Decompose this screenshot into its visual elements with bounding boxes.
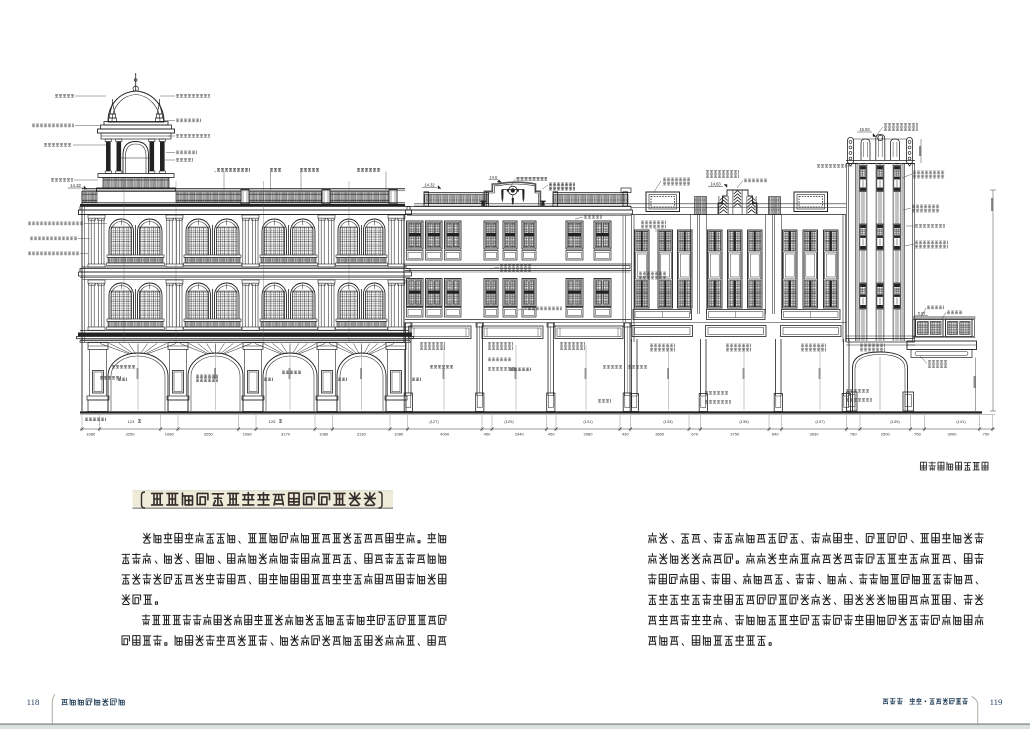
svg-text:119: 119: [990, 697, 1003, 707]
svg-text:1080: 1080: [243, 432, 253, 437]
svg-text:125: 125: [269, 419, 276, 424]
svg-text:3170: 3170: [281, 432, 291, 437]
svg-text:14.32: 14.32: [424, 183, 435, 188]
svg-text:(131): (131): [583, 419, 593, 424]
svg-text:1080: 1080: [86, 432, 96, 437]
svg-text:3250: 3250: [126, 432, 136, 437]
svg-text:670: 670: [691, 432, 698, 437]
svg-text:3600: 3600: [655, 432, 665, 437]
svg-text:1080: 1080: [165, 432, 175, 437]
svg-text:3130: 3130: [357, 432, 367, 437]
svg-text:450: 450: [548, 432, 555, 437]
svg-text:(133): (133): [663, 419, 673, 424]
svg-text:5.85: 5.85: [918, 311, 926, 316]
svg-text:430: 430: [622, 432, 629, 437]
svg-text:450: 450: [484, 432, 491, 437]
svg-text:4000: 4000: [440, 432, 450, 437]
svg-text:118: 118: [27, 697, 40, 707]
svg-text:(139): (139): [890, 419, 900, 424]
svg-text:1080: 1080: [319, 432, 329, 437]
svg-text:3630: 3630: [810, 432, 820, 437]
svg-text:3250: 3250: [204, 432, 214, 437]
svg-text:123: 123: [128, 419, 135, 424]
svg-text:15.93: 15.93: [859, 127, 870, 132]
svg-text:1080: 1080: [394, 432, 404, 437]
svg-text:14.32: 14.32: [70, 183, 81, 188]
svg-text:750: 750: [914, 432, 921, 437]
svg-text:3000: 3000: [948, 432, 958, 437]
svg-text:780: 780: [850, 432, 857, 437]
svg-text:2500: 2500: [881, 432, 891, 437]
svg-text:2980: 2980: [584, 432, 594, 437]
svg-text:700: 700: [983, 432, 990, 437]
svg-text:14.63: 14.63: [710, 182, 721, 187]
svg-text:3750: 3750: [730, 432, 740, 437]
svg-text:14.6: 14.6: [489, 174, 498, 179]
svg-text:(141): (141): [956, 419, 966, 424]
svg-text:(135): (135): [739, 419, 749, 424]
svg-text:2940: 2940: [515, 432, 525, 437]
svg-text:(137): (137): [815, 419, 825, 424]
svg-text:(129): (129): [504, 419, 514, 424]
svg-text:640: 640: [772, 432, 779, 437]
svg-text:(127): (127): [429, 419, 439, 424]
